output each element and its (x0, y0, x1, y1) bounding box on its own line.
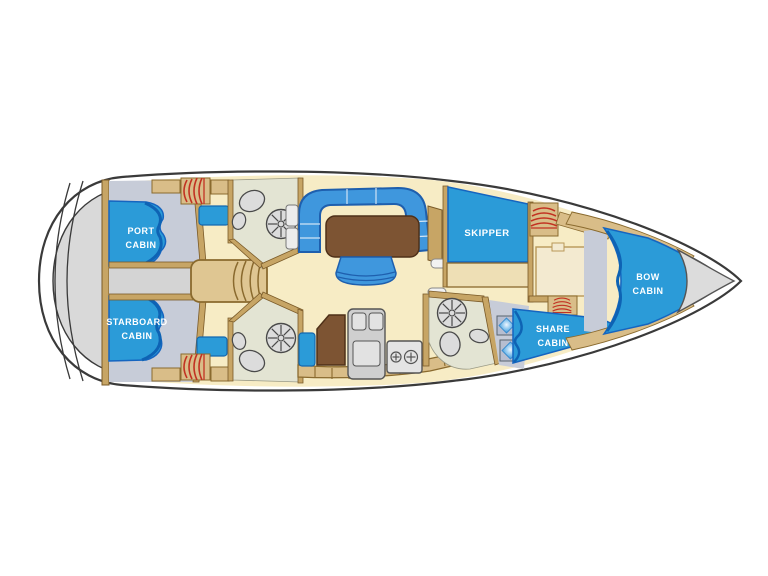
steps-base (191, 260, 267, 302)
head-wall-left (228, 180, 233, 243)
yacht-floor-plan-svg: PORT CABIN STARBOARD CABIN (0, 0, 768, 576)
shower-icon (438, 299, 467, 328)
settee-end-cabinet (286, 228, 298, 249)
skipper-label: SKIPPER (464, 228, 509, 239)
settee-end-cabinet (286, 205, 298, 226)
shelf (152, 180, 180, 193)
midship-corridor (109, 262, 193, 300)
starboard-lobby-seat (197, 337, 227, 356)
counter-lid (353, 341, 380, 366)
skipper-berth-foot (447, 263, 530, 287)
corridor-floor (109, 267, 193, 295)
corridor-wall-bottom (109, 294, 193, 300)
port-cabin-label-line2: CABIN (126, 240, 157, 250)
galley-head-wall (423, 294, 429, 366)
port-lobby-seat (199, 206, 229, 225)
bow-cabin-label-line1: BOW (636, 272, 660, 282)
port-cabin-label-line1: PORT (127, 226, 154, 236)
bow-passage (529, 243, 586, 302)
passage-seat-unit (536, 247, 586, 296)
bow-cabin-floor (584, 228, 607, 334)
salon-table (326, 216, 419, 257)
passage-seat-tab (552, 243, 564, 251)
shower-icon (267, 324, 296, 353)
aft-bulkhead-wall (102, 180, 109, 385)
salon-cabinet-column (428, 206, 442, 264)
sink-basin (369, 313, 383, 330)
corridor-wall-top (109, 262, 193, 268)
starboard-cabin-label-line1: STARBOARD (106, 317, 167, 327)
sink-basin (352, 313, 366, 330)
companionway-steps (191, 260, 267, 302)
shelf (211, 367, 229, 381)
head-wall-left (228, 318, 233, 381)
shelf (152, 368, 180, 381)
starboard-cabin-label-line2: CABIN (122, 331, 153, 341)
bow-cabin-label-line2: CABIN (633, 286, 664, 296)
share-cabin-label-line2: CABIN (538, 338, 569, 348)
nav-seat (299, 333, 315, 366)
share-cabin-label-line1: SHARE (536, 324, 570, 334)
shelf (211, 180, 229, 194)
yacht-floor-plan: PORT CABIN STARBOARD CABIN (0, 0, 768, 576)
